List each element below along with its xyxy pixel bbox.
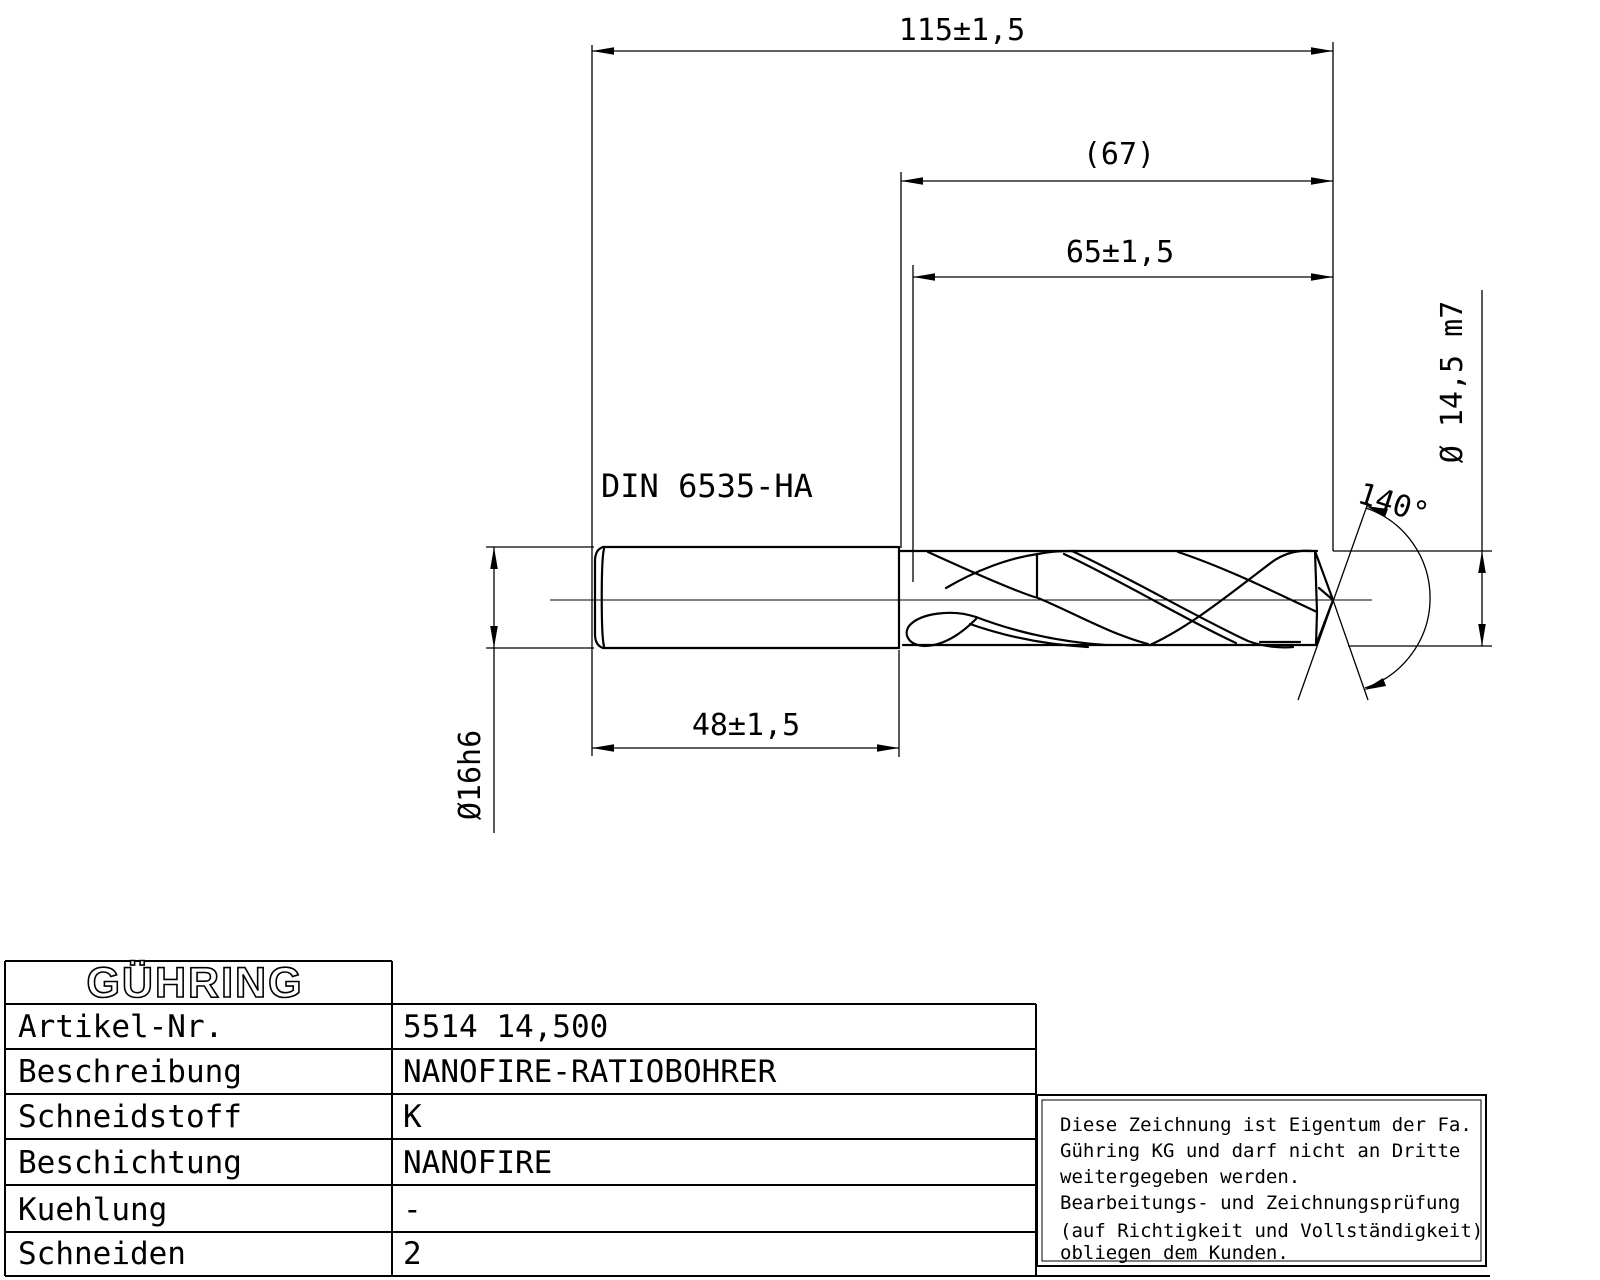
row-value: 2 [403, 1236, 422, 1272]
row-value: NANOFIRE-RATIOBOHRER [403, 1054, 777, 1090]
drawing-sheet: 115±1,5 (67) 65±1,5 DIN 6535-HA 48±1,5 Ø… [0, 0, 1600, 1280]
dim-flute-length: 65±1,5 [1066, 235, 1174, 270]
notice-line: (auf Richtigkeit und Vollständigkeit) [1060, 1220, 1483, 1242]
notice-line: Bearbeitungs- und Zeichnungsprüfung [1060, 1192, 1460, 1214]
table-row: Kuehlung - [18, 1192, 422, 1228]
dim-shank-length: 48±1,5 [692, 708, 800, 743]
drill-outline [595, 547, 1333, 648]
row-label: Schneiden [18, 1236, 186, 1272]
table-row: Schneidstoff K [18, 1099, 422, 1135]
shank-standard-label: DIN 6535-HA [601, 467, 813, 505]
table-row: Beschreibung NANOFIRE-RATIOBOHRER [18, 1054, 777, 1090]
row-label: Schneidstoff [18, 1099, 242, 1135]
dim-overall-length: 115±1,5 [899, 13, 1025, 48]
row-value: 5514 14,500 [403, 1009, 608, 1045]
dim-point-angle: 140° [1354, 476, 1434, 532]
row-label: Kuehlung [18, 1192, 167, 1228]
notice-line: Diese Zeichnung ist Eigentum der Fa. [1060, 1114, 1472, 1136]
technical-drawing-canvas: 115±1,5 (67) 65±1,5 DIN 6535-HA 48±1,5 Ø… [0, 0, 1600, 1280]
dim-flute-length-ref: (67) [1083, 137, 1155, 172]
notice-line: weitergegeben werden. [1060, 1166, 1300, 1188]
row-label: Beschreibung [18, 1054, 242, 1090]
table-row: Schneiden 2 [18, 1236, 422, 1272]
dim-cutting-diameter: Ø 14,5 m7 [1435, 301, 1470, 464]
row-label: Artikel-Nr. [18, 1009, 223, 1045]
drawing-labels: 115±1,5 (67) 65±1,5 DIN 6535-HA 48±1,5 Ø… [453, 13, 1470, 820]
row-value: - [403, 1192, 422, 1228]
notice-line: obliegen dem Kunden. [1060, 1242, 1289, 1264]
notice-line: Gühring KG und darf nicht an Dritte [1060, 1140, 1460, 1162]
dim-shank-diameter: Ø16h6 [453, 730, 488, 820]
row-value: NANOFIRE [403, 1145, 552, 1181]
ownership-notice: Diese Zeichnung ist Eigentum der Fa. Güh… [1037, 1095, 1486, 1266]
row-label: Beschichtung [18, 1145, 242, 1181]
table-row: Beschichtung NANOFIRE [18, 1145, 552, 1181]
company-logo: GÜHRING [86, 959, 303, 1007]
row-value: K [403, 1099, 422, 1135]
table-row: Artikel-Nr. 5514 14,500 [18, 1009, 608, 1045]
dimension-lines [486, 42, 1492, 833]
dimension-arrows [490, 47, 1486, 752]
